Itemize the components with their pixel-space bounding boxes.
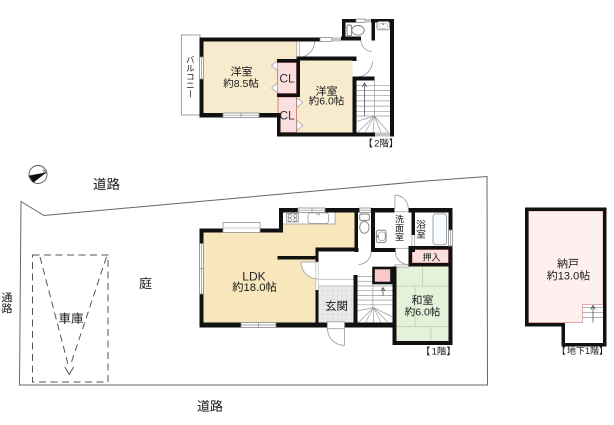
svg-text:1: 1 xyxy=(432,347,437,358)
svg-text:6.0: 6.0 xyxy=(319,96,334,108)
svg-text:CL: CL xyxy=(279,109,295,123)
svg-text:8.5: 8.5 xyxy=(234,78,249,90)
svg-text:13.0: 13.0 xyxy=(558,271,579,283)
svg-text:18.0: 18.0 xyxy=(244,282,266,294)
svg-text:1: 1 xyxy=(585,346,590,356)
svg-text:N: N xyxy=(43,170,47,176)
svg-text:6.0: 6.0 xyxy=(415,307,430,319)
svg-text:CL: CL xyxy=(279,72,295,86)
svg-text:2: 2 xyxy=(374,139,379,150)
